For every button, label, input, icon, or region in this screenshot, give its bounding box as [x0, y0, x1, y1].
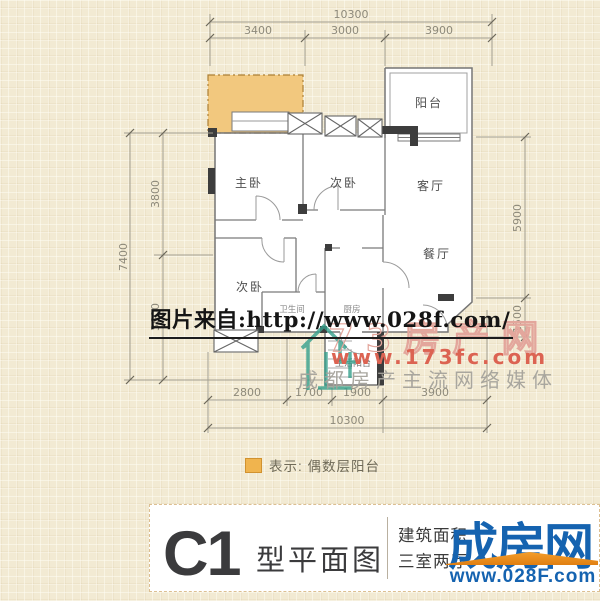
dim-top-1: 3400	[244, 24, 272, 37]
plan-type-label: 型平面图	[256, 537, 384, 579]
dim-top-2: 3000	[331, 24, 359, 37]
dim-bottom-total: 10300	[330, 414, 365, 427]
room-label-balcony: 阳台	[415, 95, 443, 110]
title-panel: C1 型平面图 建筑面积 三室两厅 成房网 www.028F.com	[149, 504, 600, 592]
plan-code: C1	[163, 523, 240, 586]
legend: 表示: 偶数层阳台	[245, 455, 380, 475]
dim-top-total: 10300	[334, 8, 369, 21]
source-url-watermark: 图片来自:http://www.028f.com/	[149, 303, 513, 339]
dim-left-total: 7400	[117, 243, 130, 271]
panel-divider	[387, 517, 388, 579]
room-label-bedroom3: 次卧	[236, 280, 264, 294]
dim-left-1: 3800	[149, 180, 162, 208]
dim-bottom-1: 2800	[233, 386, 261, 399]
portal-slogan-watermark: 成都房产主流网络媒体	[298, 368, 558, 392]
room-label-master: 主卧	[235, 176, 263, 190]
room-label-dining: 餐厅	[423, 246, 451, 261]
dim-right-1: 5900	[511, 204, 524, 232]
balcony-slider	[398, 134, 460, 141]
portal-url-watermark: www.173fc.com	[331, 345, 548, 369]
floorplan-page: 10300 3400 3000 3900 7400 3800 3600 5900…	[0, 0, 600, 601]
room-label-bedroom2: 次卧	[330, 176, 358, 190]
brand-logo: 成房网 www.028F.com	[446, 505, 600, 591]
room-label-living: 客厅	[417, 178, 445, 193]
brand-url: www.028F.com	[446, 566, 600, 588]
even-floor-balcony-swatch	[245, 458, 262, 473]
legend-label: 表示: 偶数层阳台	[269, 455, 380, 475]
dim-top-3: 3900	[425, 24, 453, 37]
